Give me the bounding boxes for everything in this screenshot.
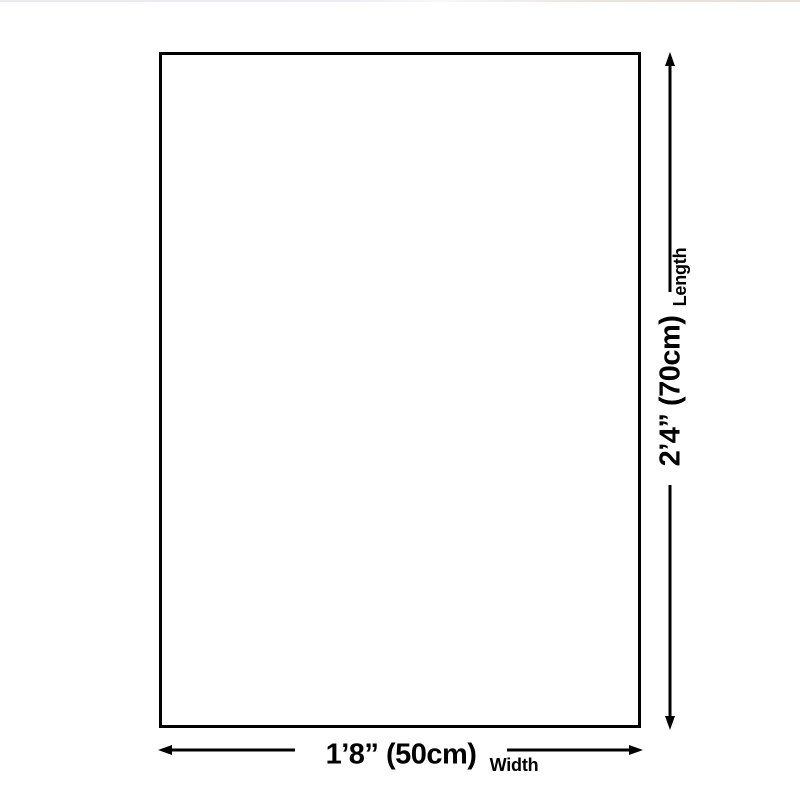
product-outline-rect (161, 54, 640, 727)
arrow-down-head-icon (665, 716, 675, 730)
arrow-right-head-icon (629, 745, 643, 755)
arrow-left-head-icon (158, 745, 172, 755)
product-size-diagram: 1’8” (50cm) Width 2’4” (70cm) Length (0, 0, 800, 800)
arrow-up-head-icon (665, 52, 675, 66)
length-dimension-value: 2’4” (70cm) (657, 316, 686, 467)
width-dimension-value: 1’8” (50cm) (326, 741, 477, 770)
width-dimension-label: Width (490, 756, 539, 774)
length-dimension-label: Length (671, 248, 689, 307)
